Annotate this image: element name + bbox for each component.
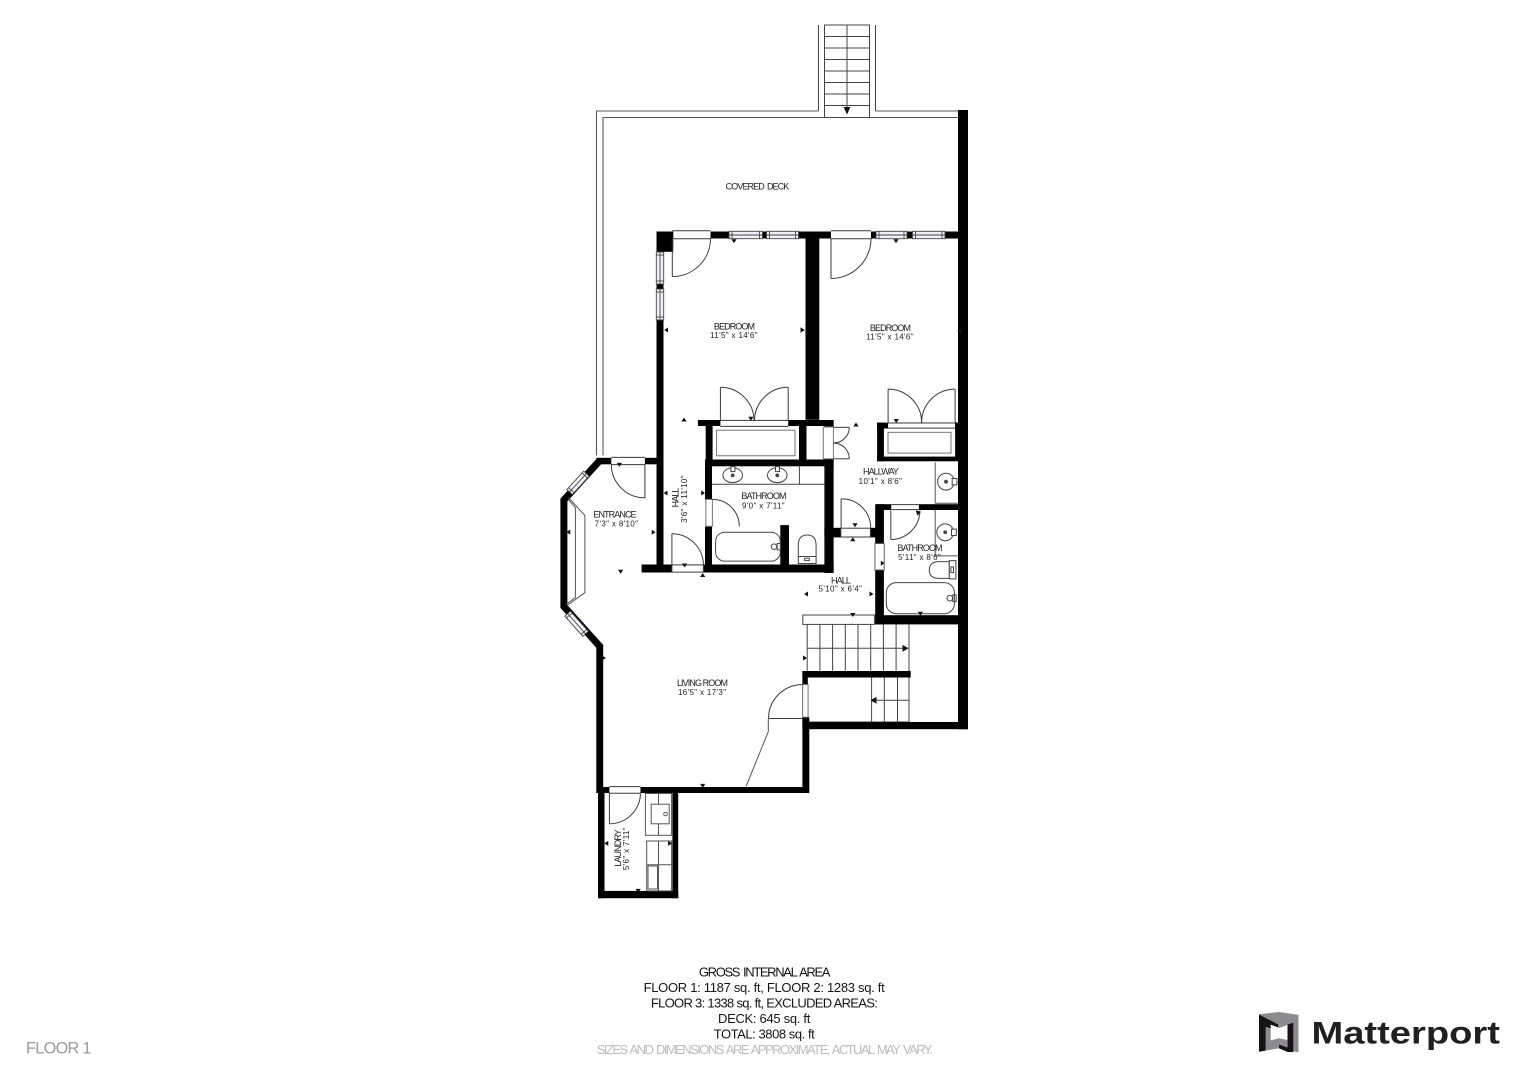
svg-text:DECK: 645 sq. ft: DECK: 645 sq. ft: [718, 1011, 811, 1026]
svg-text:FLOOR 1: 1187 sq. ft, FLOOR 2:: FLOOR 1: 1187 sq. ft, FLOOR 2: 1283 sq. …: [644, 980, 885, 995]
svg-text:BATHROOM: BATHROOM: [898, 543, 943, 553]
svg-text:TOTAL: 3808 sq. ft: TOTAL: 3808 sq. ft: [714, 1027, 815, 1042]
svg-text:11'5" x 14'6": 11'5" x 14'6": [866, 332, 914, 341]
svg-text:5'10" x 6'4": 5'10" x 6'4": [819, 584, 863, 593]
svg-text:SIZES AND DIMENSIONS ARE APPRO: SIZES AND DIMENSIONS ARE APPROXIMATE, AC…: [597, 1042, 933, 1057]
svg-text:11'5" x 14'6": 11'5" x 14'6": [710, 331, 758, 340]
svg-text:BATHROOM: BATHROOM: [741, 491, 786, 501]
svg-text:ENTRANCE: ENTRANCE: [593, 510, 636, 520]
svg-text:COVERED DECK: COVERED DECK: [726, 182, 790, 192]
svg-text:FLOOR 3: 1338 sq. ft, EXCLUDED: FLOOR 3: 1338 sq. ft, EXCLUDED AREAS:: [651, 996, 877, 1011]
svg-text:5'6" x 7'11": 5'6" x 7'11": [622, 827, 631, 870]
svg-text:5'11" x 8'6": 5'11" x 8'6": [898, 553, 941, 562]
svg-text:3'6" x 11'10": 3'6" x 11'10": [680, 475, 689, 523]
svg-text:LIVING ROOM: LIVING ROOM: [677, 678, 728, 688]
svg-text:9'0" x 7'11": 9'0" x 7'11": [742, 502, 785, 511]
svg-text:HALLWAY: HALLWAY: [863, 466, 899, 476]
svg-text:HALL: HALL: [670, 488, 680, 508]
svg-text:Matterport: Matterport: [1312, 1016, 1501, 1051]
svg-text:7'3" x 8'10": 7'3" x 8'10": [595, 519, 639, 528]
svg-text:FLOOR 1: FLOOR 1: [26, 1040, 91, 1058]
svg-text:GROSS INTERNAL AREA: GROSS INTERNAL AREA: [699, 965, 831, 980]
svg-text:16'5" x 17'3": 16'5" x 17'3": [678, 688, 726, 697]
svg-text:10'1" x 8'6": 10'1" x 8'6": [859, 477, 903, 486]
